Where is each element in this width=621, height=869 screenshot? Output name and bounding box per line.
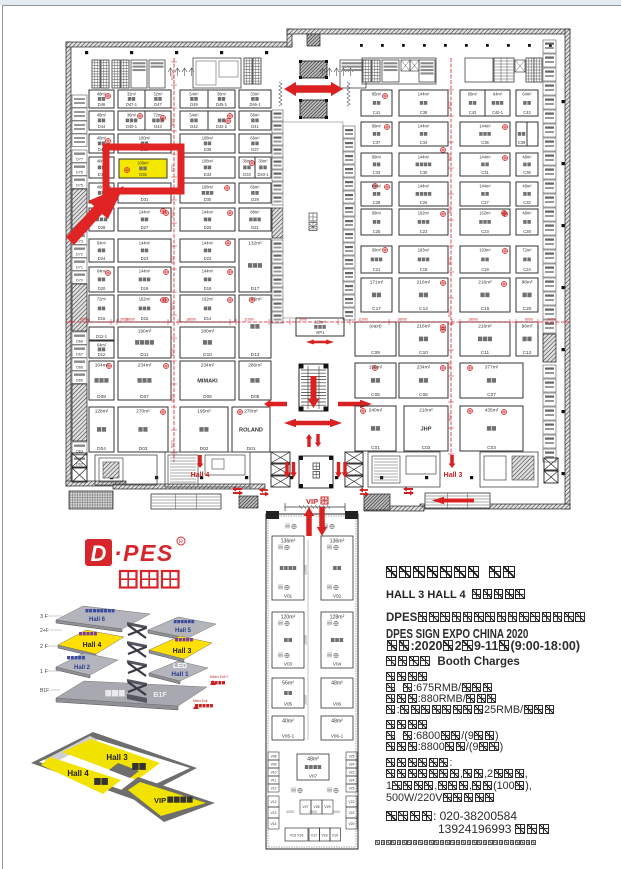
svg-text:4000: 4000 — [286, 810, 294, 814]
svg-text:C41: C41 — [373, 110, 381, 115]
svg-text:120m²: 120m² — [281, 615, 296, 621]
svg-text:D65: D65 — [76, 379, 83, 383]
svg-text:D02: D02 — [200, 446, 209, 452]
svg-text:D12: D12 — [98, 352, 106, 357]
svg-text:4000: 4000 — [332, 810, 340, 814]
svg-text:33m²: 33m² — [250, 92, 260, 97]
svg-text:C42: C42 — [523, 110, 531, 115]
svg-text:48m²: 48m² — [331, 719, 343, 725]
svg-text:(east): (east) — [369, 324, 382, 330]
svg-text:162m²: 162m² — [418, 211, 430, 216]
svg-text:D43: D43 — [154, 124, 162, 129]
svg-text:88m²: 88m² — [250, 210, 260, 215]
svg-text:48m²: 48m² — [331, 681, 343, 687]
svg-text:V05: V05 — [284, 702, 293, 707]
svg-text:V13: V13 — [270, 811, 276, 815]
svg-text:8000: 8000 — [448, 361, 452, 369]
svg-text:V20: V20 — [348, 822, 354, 826]
svg-text:D10: D10 — [203, 352, 212, 358]
svg-text:V04: V04 — [333, 662, 342, 667]
svg-text:V01: V01 — [284, 594, 293, 599]
svg-text:1 F: 1 F — [40, 669, 49, 675]
svg-text:D08: D08 — [97, 394, 106, 400]
svg-text:C28: C28 — [523, 229, 531, 234]
svg-text:54m²: 54m² — [189, 92, 199, 97]
svg-text:Hall 5: Hall 5 — [175, 628, 192, 634]
svg-text:C25: C25 — [373, 229, 381, 234]
svg-text:C11: C11 — [481, 350, 490, 356]
svg-text:195m²: 195m² — [197, 409, 211, 415]
svg-text:36m²: 36m² — [217, 92, 227, 97]
svg-text:D33: D33 — [243, 172, 251, 177]
svg-text:Hall 4: Hall 4 — [83, 642, 102, 649]
svg-text:V06-1: V06-1 — [331, 734, 344, 739]
svg-text:D45-1: D45-1 — [216, 102, 228, 107]
svg-text:C01: C01 — [371, 445, 380, 451]
svg-text:D44: D44 — [98, 124, 106, 129]
svg-text:48m²: 48m² — [522, 211, 532, 216]
svg-text:C36: C36 — [523, 170, 531, 175]
svg-text:C06: C06 — [419, 392, 428, 398]
svg-text:D14: D14 — [204, 316, 212, 321]
svg-text:C10: C10 — [419, 350, 428, 356]
svg-text:234m²: 234m² — [417, 365, 431, 371]
svg-text:99m²: 99m² — [372, 211, 382, 216]
svg-text:C15: C15 — [481, 306, 490, 312]
svg-text:V28: V28 — [313, 805, 319, 809]
svg-text:D: D — [91, 541, 107, 566]
svg-text:D19: D19 — [141, 286, 149, 291]
svg-text:8000: 8000 — [448, 309, 452, 317]
svg-text:D28: D28 — [98, 225, 106, 230]
svg-text:D47: D47 — [154, 102, 162, 107]
svg-text:377m²: 377m² — [485, 365, 499, 371]
svg-text:Hall 1: Hall 1 — [171, 671, 189, 678]
svg-text:136m²: 136m² — [281, 539, 296, 545]
svg-text:11000: 11000 — [358, 317, 368, 321]
svg-text:V08: V08 — [271, 755, 277, 759]
svg-text:6000: 6000 — [171, 394, 175, 402]
svg-text:V09: V09 — [271, 763, 277, 767]
svg-text:C27: C27 — [481, 200, 489, 205]
svg-text:D66: D66 — [76, 366, 83, 370]
svg-text:6000: 6000 — [171, 348, 175, 356]
svg-text:144m²: 144m² — [418, 155, 430, 160]
svg-text:D20: D20 — [98, 286, 106, 291]
svg-text:D38: D38 — [204, 147, 212, 152]
svg-text:D40-1: D40-1 — [126, 124, 138, 129]
svg-text:144m²: 144m² — [418, 124, 430, 129]
svg-text:66m²: 66m² — [250, 185, 260, 190]
svg-text:D03: D03 — [139, 446, 148, 452]
svg-text:B1F: B1F — [40, 688, 49, 694]
svg-text:16000: 16000 — [304, 635, 308, 645]
svg-text:VIP1: VIP1 — [316, 330, 326, 335]
svg-text:8000: 8000 — [448, 205, 452, 213]
svg-text:108m²: 108m² — [202, 136, 214, 141]
svg-text:48m²: 48m² — [307, 757, 319, 763]
svg-text:D68: D68 — [76, 340, 83, 344]
svg-text:40m²: 40m² — [282, 719, 294, 725]
svg-text:3500: 3500 — [309, 810, 317, 814]
svg-text:144m²: 144m² — [479, 124, 491, 129]
svg-text:85m²: 85m² — [372, 92, 382, 97]
svg-text:D21: D21 — [251, 225, 259, 230]
svg-text:D46-1: D46-1 — [249, 102, 261, 107]
svg-text:D70: D70 — [76, 279, 83, 283]
svg-text:144m²: 144m² — [418, 184, 430, 189]
svg-text:V25: V25 — [349, 787, 355, 791]
svg-text:56m²: 56m² — [282, 681, 294, 687]
svg-text:144m²: 144m² — [202, 241, 214, 246]
svg-text:D27: D27 — [141, 225, 149, 230]
svg-text:234m²: 234m² — [138, 363, 152, 369]
svg-text:144m²: 144m² — [479, 184, 491, 189]
svg-text:JHP: JHP — [421, 427, 432, 433]
svg-text:C17: C17 — [372, 306, 381, 312]
svg-text:D37: D37 — [251, 147, 259, 152]
svg-text:C02: C02 — [422, 445, 431, 451]
svg-text:D42-2: D42-2 — [216, 124, 228, 129]
svg-text:·PES: ·PES — [114, 540, 174, 566]
svg-text:C38: C38 — [420, 110, 428, 115]
svg-text:D47-1: D47-1 — [126, 102, 138, 107]
svg-text:D11: D11 — [140, 352, 149, 358]
svg-text:216m²: 216m² — [417, 324, 431, 330]
svg-text:216m²: 216m² — [478, 280, 492, 286]
svg-text:C32: C32 — [523, 200, 531, 205]
svg-text:96m²: 96m² — [522, 324, 533, 330]
svg-text:C37: C37 — [373, 140, 381, 145]
svg-text:Metro Exit C: Metro Exit C — [210, 675, 229, 679]
svg-text:89m²: 89m² — [372, 124, 382, 129]
svg-text:V12: V12 — [271, 787, 277, 791]
svg-text:R: R — [179, 540, 183, 546]
svg-text:216m²: 216m² — [417, 280, 431, 286]
svg-text:V14: V14 — [270, 822, 276, 826]
svg-text:C14: C14 — [419, 306, 428, 312]
svg-text:100m²: 100m² — [137, 161, 149, 166]
svg-text:V05-1: V05-1 — [282, 734, 295, 739]
svg-text:C12: C12 — [523, 350, 532, 356]
svg-text:3000: 3000 — [547, 317, 555, 321]
svg-text:C18: C18 — [420, 267, 428, 272]
svg-text:64m²: 64m² — [493, 92, 503, 97]
svg-text:D26: D26 — [204, 225, 212, 230]
svg-text:2 F: 2 F — [40, 644, 49, 650]
svg-text:64m²: 64m² — [522, 92, 532, 97]
svg-text:193m²: 193m² — [418, 248, 430, 253]
svg-text:V02: V02 — [333, 594, 342, 599]
svg-text:48m²: 48m² — [97, 136, 107, 141]
svg-text:162m²: 162m² — [139, 297, 151, 302]
svg-text:15000: 15000 — [304, 695, 308, 705]
svg-text:193m²: 193m² — [479, 248, 491, 253]
svg-text:VIP: VIP — [306, 497, 318, 506]
svg-text:D75: D75 — [76, 184, 83, 188]
svg-text:D33-1: D33-1 — [257, 172, 269, 177]
svg-text:128m²: 128m² — [330, 615, 345, 621]
svg-text:6000: 6000 — [171, 302, 175, 310]
svg-text:V29: V29 — [324, 805, 330, 809]
svg-text:V23: V23 — [349, 771, 355, 775]
svg-text:V27: V27 — [302, 805, 308, 809]
svg-text:36m²: 36m² — [127, 113, 137, 118]
svg-text:D71: D71 — [76, 266, 83, 270]
svg-text:D77: D77 — [76, 158, 83, 162]
svg-text:Hall 3: Hall 3 — [444, 472, 463, 479]
svg-text:6000: 6000 — [171, 72, 175, 80]
svg-text:89m²: 89m² — [372, 155, 382, 160]
svg-text:C26: C26 — [420, 200, 428, 205]
svg-text:Hall 3: Hall 3 — [106, 753, 128, 762]
svg-text:C33: C33 — [373, 170, 381, 175]
svg-text:6000: 6000 — [171, 164, 175, 172]
svg-text:89m²: 89m² — [372, 184, 382, 189]
svg-text:D22: D22 — [204, 256, 212, 261]
svg-text:144m²: 144m² — [202, 269, 214, 274]
svg-text:D34: D34 — [204, 172, 212, 177]
svg-text:V03: V03 — [284, 662, 293, 667]
svg-text:C40-1: C40-1 — [492, 110, 504, 115]
svg-text:D41: D41 — [251, 124, 259, 129]
svg-text:V15 V16: V15 V16 — [290, 834, 304, 838]
svg-text:144m²: 144m² — [479, 155, 491, 160]
svg-text:D05: D05 — [251, 394, 260, 400]
svg-text:144m²: 144m² — [418, 92, 430, 97]
svg-text:C19: C19 — [481, 267, 489, 272]
svg-text:6000: 6000 — [171, 118, 175, 126]
svg-text:D13: D13 — [251, 352, 260, 358]
svg-text:8000: 8000 — [525, 317, 533, 321]
svg-text:D23: D23 — [141, 256, 149, 261]
svg-text:C43: C43 — [469, 110, 477, 115]
svg-text:C39: C39 — [518, 140, 526, 145]
svg-text:D30: D30 — [204, 197, 212, 202]
svg-text:V22: V22 — [348, 800, 354, 804]
svg-text:VIP: VIP — [154, 796, 166, 805]
svg-text:C23: C23 — [481, 229, 489, 234]
svg-text:D46: D46 — [98, 102, 106, 107]
svg-text:V10: V10 — [271, 771, 277, 775]
svg-text:8000: 8000 — [448, 101, 452, 109]
svg-text:48m²: 48m² — [522, 184, 532, 189]
svg-text:C31: C31 — [481, 170, 489, 175]
svg-text:54m²: 54m² — [189, 113, 199, 118]
svg-text:234m²: 234m² — [201, 363, 215, 369]
svg-text:8000: 8000 — [448, 257, 452, 265]
svg-text:18000: 18000 — [397, 317, 407, 321]
svg-text:64m²: 64m² — [97, 343, 107, 348]
svg-text:32m²: 32m² — [153, 92, 163, 97]
svg-text:C30: C30 — [420, 170, 428, 175]
svg-text:144m²: 144m² — [139, 269, 151, 274]
svg-text:66m²: 66m² — [250, 113, 260, 118]
svg-text:210m²: 210m² — [419, 408, 433, 414]
svg-text:136m²: 136m² — [330, 539, 345, 545]
svg-text:C05: C05 — [371, 392, 380, 398]
svg-text:48m²: 48m² — [522, 155, 532, 160]
svg-text:240m²: 240m² — [369, 408, 383, 414]
svg-text:18000: 18000 — [468, 317, 478, 321]
svg-text:V06: V06 — [333, 702, 342, 707]
svg-text:V25: V25 — [349, 755, 355, 759]
svg-text:D29: D29 — [251, 197, 259, 202]
svg-text:5000: 5000 — [299, 317, 307, 321]
svg-text:3 F: 3 F — [40, 614, 49, 620]
svg-text:D17: D17 — [251, 286, 260, 292]
svg-text:D72: D72 — [76, 253, 83, 257]
svg-text:2+F: 2+F — [40, 628, 49, 634]
svg-text:V18: V18 — [321, 834, 327, 838]
svg-text:66m²: 66m² — [250, 136, 260, 141]
svg-text:V19: V19 — [332, 834, 338, 838]
svg-text:99m²: 99m² — [372, 248, 382, 253]
svg-text:180m²: 180m² — [201, 329, 215, 335]
svg-text:8000: 8000 — [448, 153, 452, 161]
svg-text:18000: 18000 — [125, 317, 135, 321]
svg-text:144m²: 144m² — [139, 210, 151, 215]
svg-text:144m²: 144m² — [139, 241, 151, 246]
svg-text:D62: D62 — [76, 463, 83, 467]
svg-text:11000: 11000 — [244, 317, 254, 321]
svg-text:68m²: 68m² — [468, 92, 478, 97]
svg-text:132m²: 132m² — [248, 241, 262, 247]
svg-text:162m²: 162m² — [202, 297, 214, 302]
svg-text:100m²: 100m² — [139, 136, 151, 141]
svg-text:108m²: 108m² — [202, 159, 214, 164]
svg-text:D42: D42 — [190, 124, 198, 129]
svg-text:72m²: 72m² — [522, 248, 532, 253]
svg-text:C24: C24 — [523, 267, 531, 272]
svg-text:Hall 4: Hall 4 — [191, 472, 210, 479]
svg-text:C21: C21 — [373, 267, 381, 272]
svg-text:32m²: 32m² — [127, 92, 137, 97]
svg-text:C34: C34 — [420, 140, 428, 145]
svg-text:8000: 8000 — [80, 317, 88, 321]
svg-text:Hall 4: Hall 4 — [67, 769, 89, 778]
svg-text:128m²: 128m² — [95, 409, 109, 415]
svg-text:V24: V24 — [349, 763, 355, 767]
svg-text:ROLAND: ROLAND — [239, 428, 263, 434]
svg-text:C20: C20 — [523, 306, 532, 312]
svg-text:8000: 8000 — [448, 413, 452, 421]
svg-text:162m²: 162m² — [479, 211, 491, 216]
svg-text:D24: D24 — [98, 256, 106, 261]
svg-text:C09: C09 — [371, 350, 380, 356]
svg-text:171m²: 171m² — [370, 280, 384, 286]
svg-text:216m²: 216m² — [478, 324, 492, 330]
svg-text:C22: C22 — [420, 229, 428, 234]
svg-text:13000: 13000 — [304, 565, 308, 575]
svg-text:D12-1: D12-1 — [96, 334, 108, 339]
svg-text:Hall 3: Hall 3 — [173, 648, 192, 655]
svg-text:Hall 6: Hall 6 — [89, 617, 106, 623]
svg-text:D15: D15 — [141, 316, 149, 321]
svg-text:6000: 6000 — [171, 210, 175, 218]
svg-text:6000: 6000 — [171, 256, 175, 264]
svg-text:72m²: 72m² — [97, 297, 107, 302]
svg-text:D04: D04 — [97, 446, 106, 452]
svg-text:C29: C29 — [373, 200, 381, 205]
svg-text:Hall 2: Hall 2 — [74, 665, 91, 671]
svg-text:190m²: 190m² — [138, 329, 152, 335]
svg-text:Metro Exit: Metro Exit — [193, 699, 207, 703]
svg-text:C03: C03 — [487, 445, 496, 451]
svg-text:48m²: 48m² — [97, 113, 107, 118]
svg-text:V07: V07 — [309, 774, 318, 779]
svg-text:D06: D06 — [203, 394, 212, 400]
svg-text:MIMAKI: MIMAKI — [197, 379, 218, 385]
svg-text:6000: 6000 — [171, 440, 175, 448]
svg-text:D76: D76 — [76, 171, 83, 175]
svg-text:270m²: 270m² — [244, 409, 258, 415]
svg-text:108m²: 108m² — [202, 185, 214, 190]
svg-text:156m²: 156m² — [369, 365, 383, 371]
svg-text:C07: C07 — [487, 392, 496, 398]
svg-text:V24: V24 — [349, 779, 355, 783]
svg-text:D01: D01 — [247, 446, 256, 452]
svg-text:18000: 18000 — [186, 317, 196, 321]
svg-text:435m²: 435m² — [485, 408, 499, 414]
svg-text:C35: C35 — [481, 140, 489, 145]
svg-text:144m²: 144m² — [202, 210, 214, 215]
svg-text:D35: D35 — [139, 172, 147, 177]
svg-text:D07: D07 — [140, 394, 149, 400]
svg-text:270m²: 270m² — [136, 409, 150, 415]
svg-text:30m²: 30m² — [258, 159, 268, 164]
svg-text:V17: V17 — [311, 834, 317, 838]
svg-text:D18: D18 — [204, 286, 212, 291]
svg-text:D16: D16 — [98, 316, 106, 321]
svg-text:B1F: B1F — [153, 692, 167, 699]
svg-text:D31: D31 — [141, 197, 149, 202]
svg-text:V12: V12 — [270, 800, 276, 804]
svg-text:V11: V11 — [271, 779, 277, 783]
svg-text:88m²: 88m² — [522, 280, 533, 286]
svg-text:286m²: 286m² — [248, 363, 262, 369]
svg-text:64m²: 64m² — [97, 241, 107, 246]
svg-text:72m²: 72m² — [153, 113, 163, 118]
svg-text:LED: LED — [173, 663, 187, 670]
svg-text:V21: V21 — [348, 811, 354, 815]
svg-text:D49: D49 — [190, 102, 198, 107]
svg-text:D67: D67 — [76, 353, 83, 357]
